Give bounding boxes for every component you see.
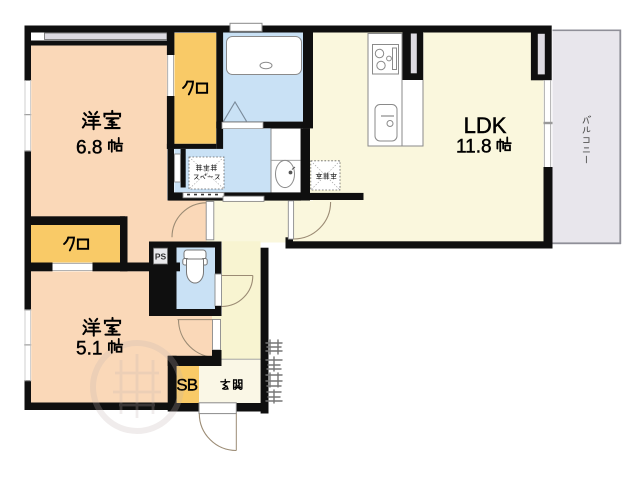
svg-text:LDK: LDK xyxy=(464,113,507,138)
svg-text:6.8: 6.8 xyxy=(76,138,102,159)
svg-text:PS: PS xyxy=(155,251,167,261)
svg-text:SB: SB xyxy=(176,376,198,395)
svg-text:5.1: 5.1 xyxy=(76,339,102,360)
svg-text:11.8: 11.8 xyxy=(456,137,492,158)
